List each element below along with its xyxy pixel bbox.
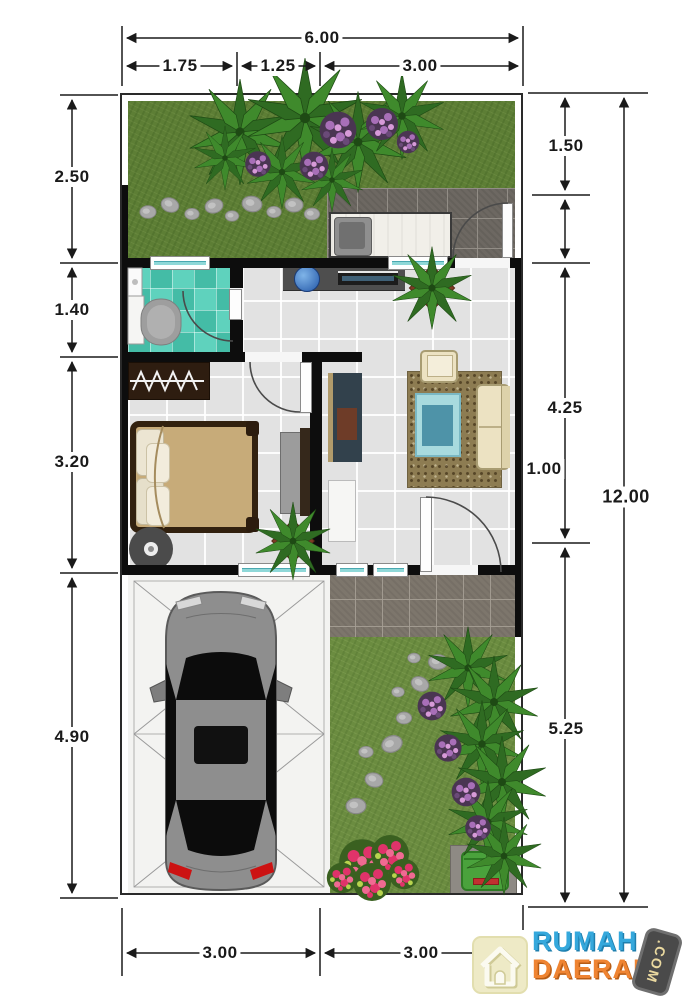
watermark-logo: RUMAH DAERAH .COM (468, 926, 687, 1000)
dim-width-overall: 6.00 (301, 28, 342, 48)
dim-right-seg2: 4.25 (544, 398, 585, 418)
dim-left-seg3: 3.20 (51, 452, 92, 472)
house-icon (472, 936, 528, 994)
dim-left-seg2: 1.40 (51, 300, 92, 320)
dim-top-seg2: 1.25 (257, 56, 298, 76)
plan-outline (120, 93, 523, 895)
dim-right-seg4: 5.25 (545, 719, 586, 739)
dim-bottom-seg2: 3.00 (400, 943, 441, 963)
brand-name-top: RUMAH (532, 928, 638, 955)
dim-right-seg3: 1.00 (523, 459, 564, 479)
floor-plan-page: 6.00 1.75 1.25 3.00 2.50 1.40 3.20 4.90 … (0, 0, 687, 1000)
dim-left-seg4: 4.90 (51, 727, 92, 747)
brand-tld-badge: .COM (630, 926, 684, 998)
dim-top-seg3: 3.00 (399, 56, 440, 76)
dim-bottom-seg1: 3.00 (199, 943, 240, 963)
dim-height-overall: 12.00 (599, 487, 653, 508)
dim-left-seg1: 2.50 (51, 167, 92, 187)
dim-right-seg1: 1.50 (545, 136, 586, 156)
brand-tld: .COM (643, 938, 671, 985)
dim-top-seg1: 1.75 (159, 56, 200, 76)
